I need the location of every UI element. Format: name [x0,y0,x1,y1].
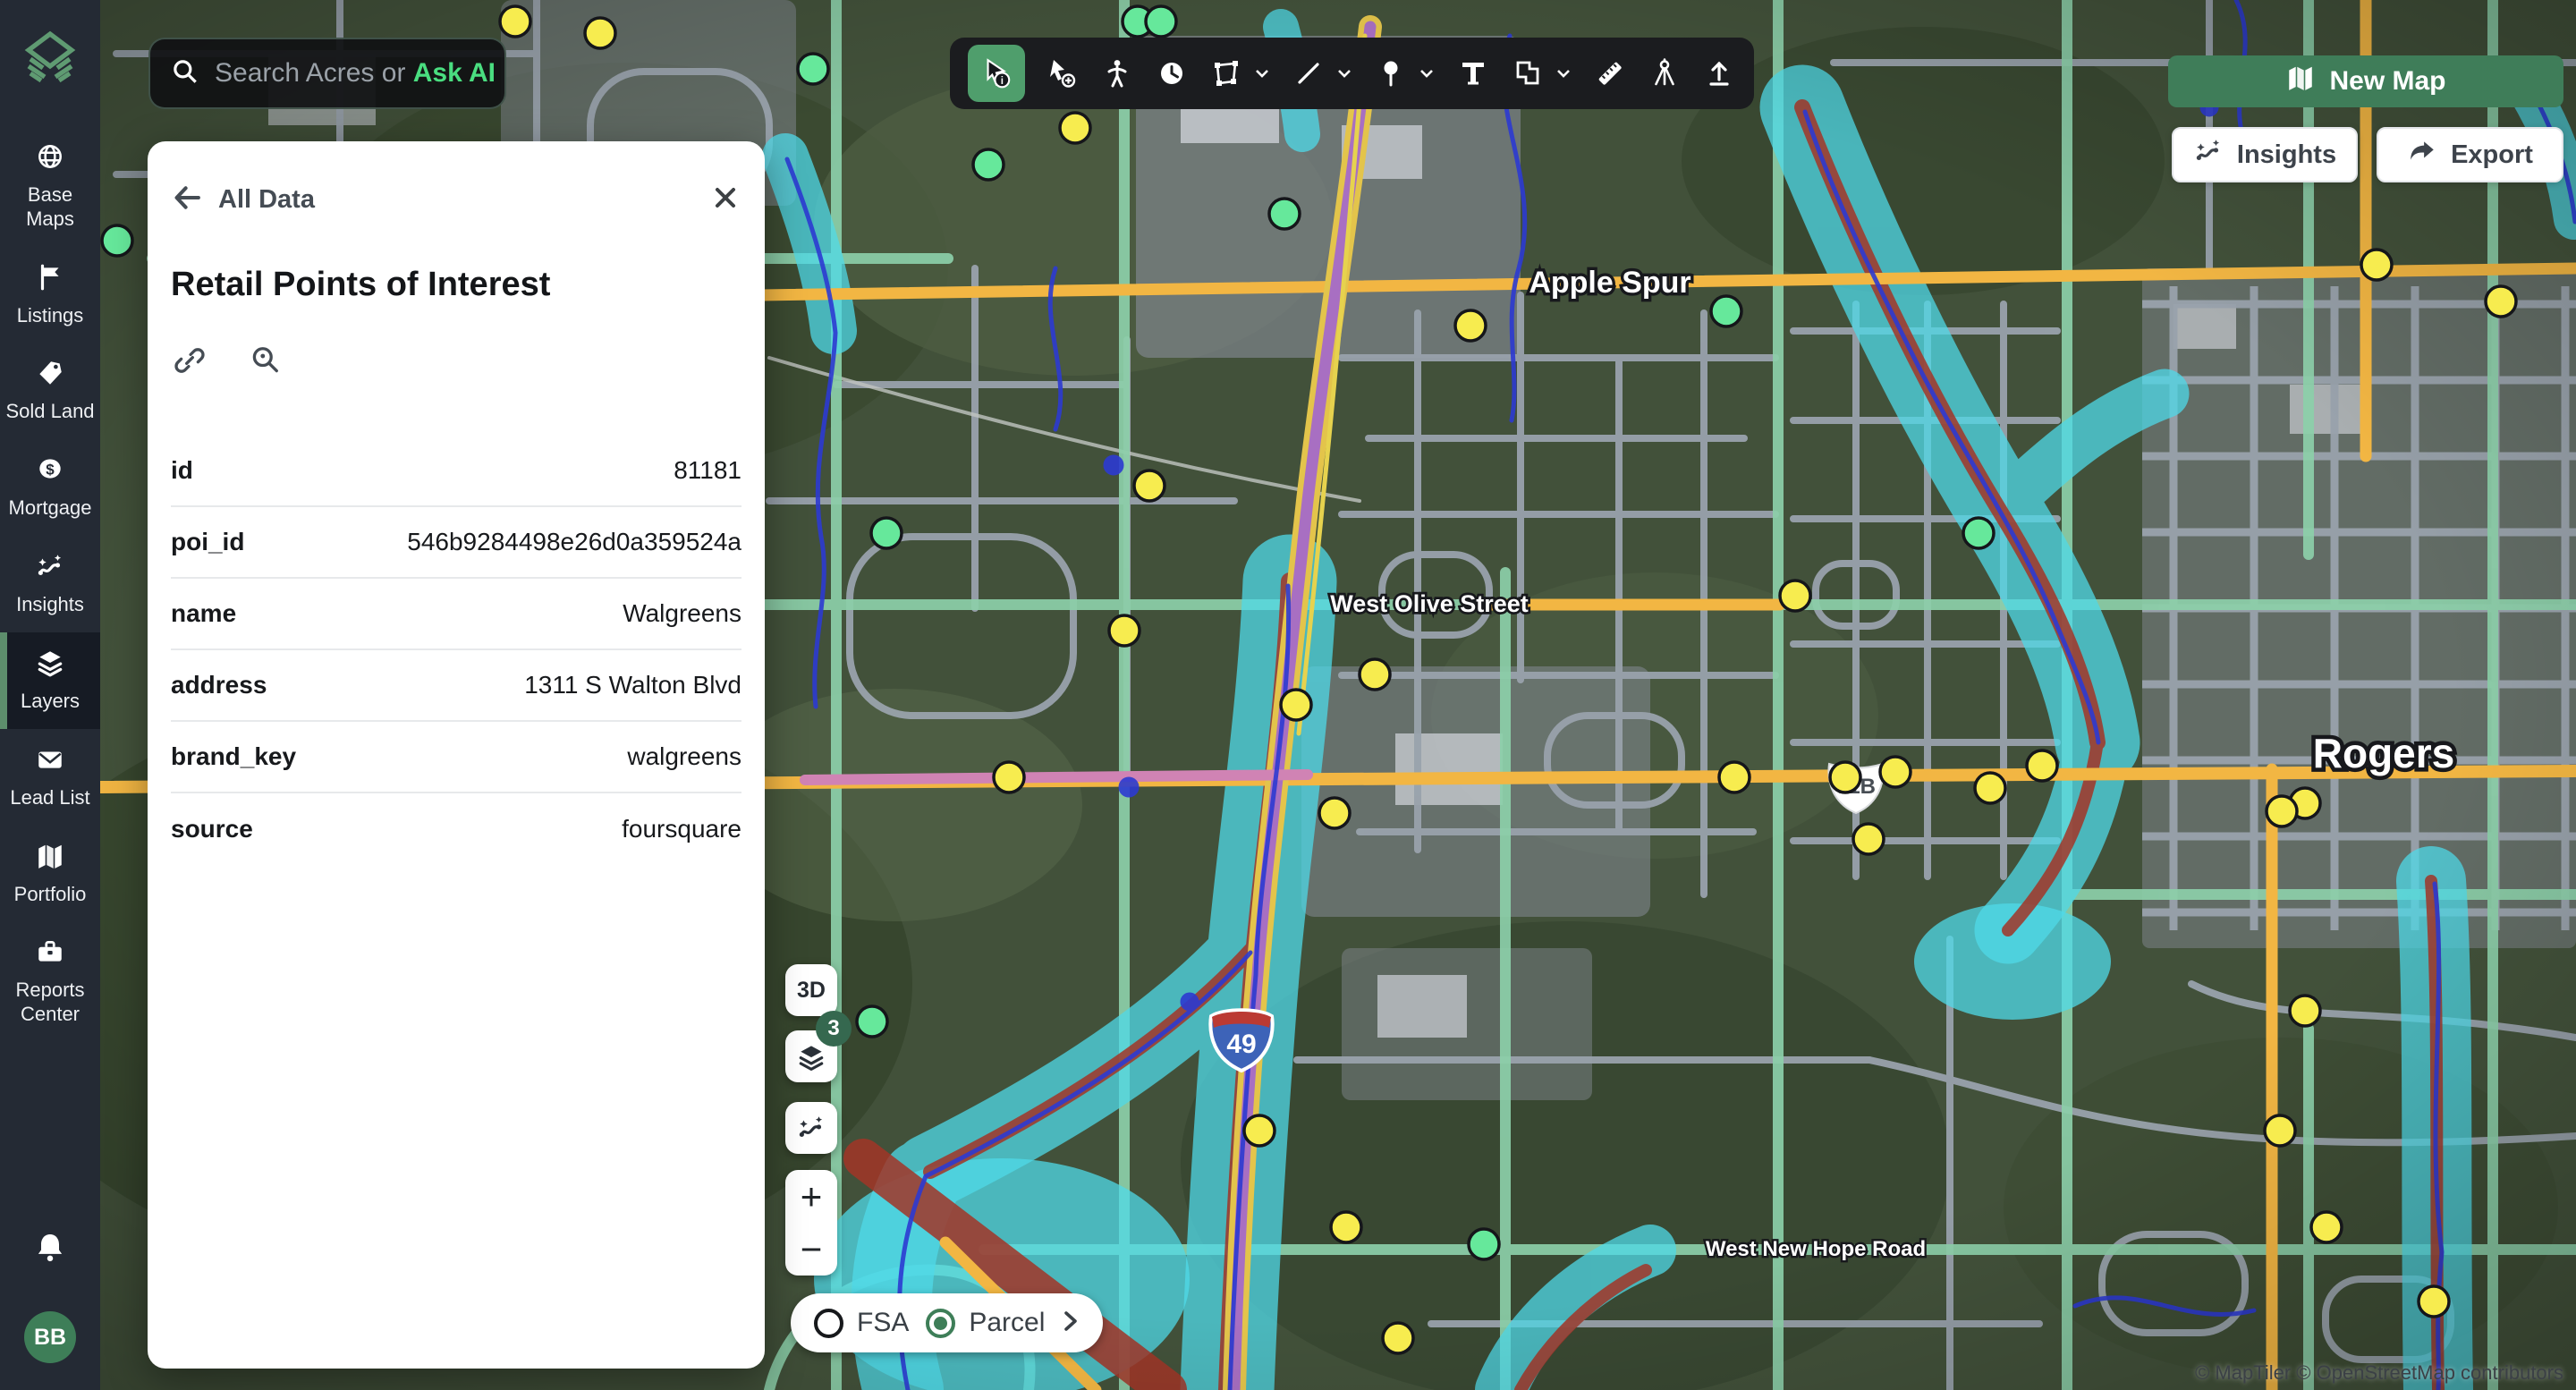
poi-marker-yellow [1780,581,1810,611]
sidebar-item-label: Insights [16,593,84,617]
tool-pedestrian[interactable] [1100,56,1134,90]
sidebar: Base Maps Listings Sold Land $ Mortgage [0,0,100,1390]
poi-marker-green [1269,199,1300,229]
map-icon [2285,63,2316,100]
sidebar-item-label: Mortgage [9,496,92,521]
layers-count-badge: 3 [816,1011,852,1047]
sidebar-item-label: Sold Land [5,400,94,424]
svg-text:49: 49 [1226,1030,1256,1059]
poi-marker-yellow [585,18,615,48]
option-parcel[interactable]: Parcel [926,1308,1045,1338]
field-label: name [171,599,236,628]
sidebar-item-base-maps[interactable]: Base Maps [0,126,100,247]
search-input[interactable]: Search Acres or Ask AI [148,38,506,109]
poi-marker-yellow [2311,1212,2342,1242]
tool-select-info[interactable]: i [968,45,1025,102]
poi-marker-green [1146,6,1176,37]
poi-marker-yellow [2267,796,2297,826]
tool-add-pin-cursor[interactable] [1046,56,1080,90]
parcel-label: Parcel [969,1308,1045,1338]
panel-title: Retail Points of Interest [171,266,741,304]
field-row-source: source foursquare [171,793,741,865]
dollar-icon: $ [35,454,65,489]
poi-marker-yellow [2419,1286,2449,1317]
map-insights-button[interactable] [785,1102,837,1154]
sidebar-item-reports-center[interactable]: Reports Center [0,921,100,1042]
chevron-down-icon[interactable] [1418,67,1436,80]
option-fsa[interactable]: FSA [814,1308,909,1338]
notifications-bell-icon[interactable] [32,1230,68,1270]
tool-place-pin[interactable] [1374,56,1408,90]
toggle-3d-button[interactable]: 3D [785,964,837,1016]
field-row-poi-id: poi_id 546b9284498e26d0a359524a [171,507,741,579]
parcel-layer-toggle: FSA Parcel [791,1293,1103,1352]
field-value: foursquare [622,815,741,843]
export-button[interactable]: Export [2377,127,2563,182]
zoom-control: + − [785,1170,837,1276]
chevron-right-icon[interactable] [1062,1307,1080,1340]
field-label: brand_key [171,742,296,771]
share-arrow-icon [2407,136,2437,174]
sidebar-item-mortgage[interactable]: $ Mortgage [0,439,100,536]
tool-draw-polygon[interactable] [1209,56,1243,90]
field-label: source [171,815,253,843]
back-to-all-data[interactable]: All Data [171,181,315,219]
poi-marker-green [1711,296,1741,326]
poi-marker-yellow [500,6,530,37]
user-avatar[interactable]: BB [24,1311,76,1363]
tool-upload[interactable] [1702,56,1736,90]
street-label: Apple Spur [1529,266,1690,300]
insights-button[interactable]: Insights [2172,127,2358,182]
field-value: walgreens [627,742,741,771]
radio-selected-icon [926,1309,955,1338]
svg-text:i: i [1001,76,1004,87]
field-value: 81181 [674,456,741,485]
field-row-id: id 81181 [171,436,741,507]
field-value: Walgreens [623,599,741,628]
poi-marker-green [1963,518,1994,548]
insights-label: Insights [2237,140,2336,170]
poi-marker-yellow [2361,250,2392,280]
chevron-down-icon[interactable] [1335,67,1353,80]
tool-text[interactable] [1456,56,1490,90]
poi-marker-yellow [1830,762,1860,792]
poi-marker-yellow [1719,762,1750,792]
sidebar-item-label: Lead List [10,786,89,810]
sidebar-item-label: Layers [21,690,80,714]
poi-marker-green [102,225,132,256]
locate-poi-icon[interactable] [246,342,284,384]
close-icon[interactable] [709,182,741,218]
sidebar-item-layers[interactable]: Layers [0,632,100,729]
new-map-button[interactable]: New Map [2168,55,2563,107]
search-placeholder: Search Acres or Ask AI [215,58,496,89]
map-toolbar: i [950,38,1754,109]
trend-sparkle-icon [2193,136,2224,174]
poi-marker-yellow [1853,824,1884,854]
poi-marker-green [973,149,1004,180]
poi-marker-yellow [1109,615,1140,646]
poi-marker-yellow [2290,996,2320,1026]
briefcase-icon [35,937,65,971]
poi-marker-yellow [1455,310,1486,341]
poi-marker-yellow [1134,470,1165,501]
tool-history-clock[interactable] [1155,56,1189,90]
poi-marker-yellow [1244,1115,1275,1146]
poi-marker-yellow [1319,798,1350,828]
copy-link-icon[interactable] [171,342,208,384]
poi-detail-panel: All Data Retail Points of Interest id 81… [148,141,765,1369]
poi-marker-green [871,518,902,548]
search-icon [170,56,200,91]
zoom-out-button[interactable]: − [801,1231,823,1268]
back-label: All Data [218,185,315,215]
chevron-down-icon[interactable] [1555,67,1572,80]
poi-marker-yellow [2265,1115,2295,1146]
acres-logo-icon[interactable] [16,23,84,96]
street-label: West New Hope Road [1706,1237,1926,1261]
back-arrow-icon [171,181,205,219]
sidebar-item-sold-land[interactable]: Sold Land [0,343,100,439]
tool-draw-line[interactable] [1292,56,1326,90]
street-label: Rogers [2313,730,2454,776]
field-value: 1311 S Walton Blvd [524,671,741,699]
field-label: poi_id [171,528,244,556]
sidebar-item-portfolio[interactable]: Portfolio [0,826,100,922]
poi-marker-green [857,1006,887,1037]
field-row-address: address 1311 S Walton Blvd [171,650,741,722]
field-label: address [171,671,267,699]
poi-marker-yellow [1880,757,1911,787]
radio-unselected-icon [814,1309,843,1338]
flag-icon [35,262,65,297]
sidebar-item-listings[interactable]: Listings [0,247,100,343]
map-attribution: © MapTiler © OpenStreetMap contributors [2195,1361,2563,1385]
zoom-in-button[interactable]: + [801,1178,823,1216]
sidebar-item-label: Reports Center [2,979,98,1027]
sidebar-item-lead-list[interactable]: Lead List [0,729,100,826]
poi-marker-yellow [1060,113,1090,143]
tool-survey[interactable] [1648,56,1682,90]
field-row-brand-key: brand_key walgreens [171,722,741,793]
poi-marker-yellow [1331,1212,1361,1242]
tool-measure-ruler[interactable] [1593,56,1627,90]
mail-icon [35,744,65,779]
poi-marker-yellow [2027,750,2057,781]
sidebar-item-insights[interactable]: Insights [0,536,100,632]
street-label: West Olive Street [1330,590,1529,617]
map-icon [35,841,65,876]
field-value: 546b9284498e26d0a359524a [407,528,741,556]
field-list: id 81181 poi_id 546b9284498e26d0a359524a… [171,436,741,865]
poi-marker-green [798,54,828,84]
tag-icon [35,358,65,393]
new-map-label: New Map [2329,66,2445,97]
fsa-label: FSA [857,1308,909,1338]
poi-marker-yellow [1975,773,2005,803]
poi-marker-yellow [994,762,1024,792]
poi-marker-green [1469,1229,1499,1259]
globe-icon [35,141,65,176]
trend-sparkle-icon [35,551,65,586]
export-label: Export [2451,140,2533,170]
tool-merge-shapes[interactable] [1511,56,1545,90]
poi-marker-yellow [2486,286,2516,317]
field-row-name: name Walgreens [171,579,741,650]
field-label: id [171,456,193,485]
svg-text:$: $ [46,462,55,479]
sidebar-item-label: Base Maps [2,183,98,232]
poi-marker-yellow [1360,659,1390,690]
sidebar-item-label: Portfolio [14,883,87,907]
poi-marker-yellow [1281,690,1311,720]
layers-icon [35,648,65,682]
sidebar-item-label: Listings [17,304,84,328]
chevron-down-icon[interactable] [1253,67,1271,80]
poi-marker-yellow [1383,1323,1413,1353]
ask-ai-accent: Ask AI [413,58,496,88]
